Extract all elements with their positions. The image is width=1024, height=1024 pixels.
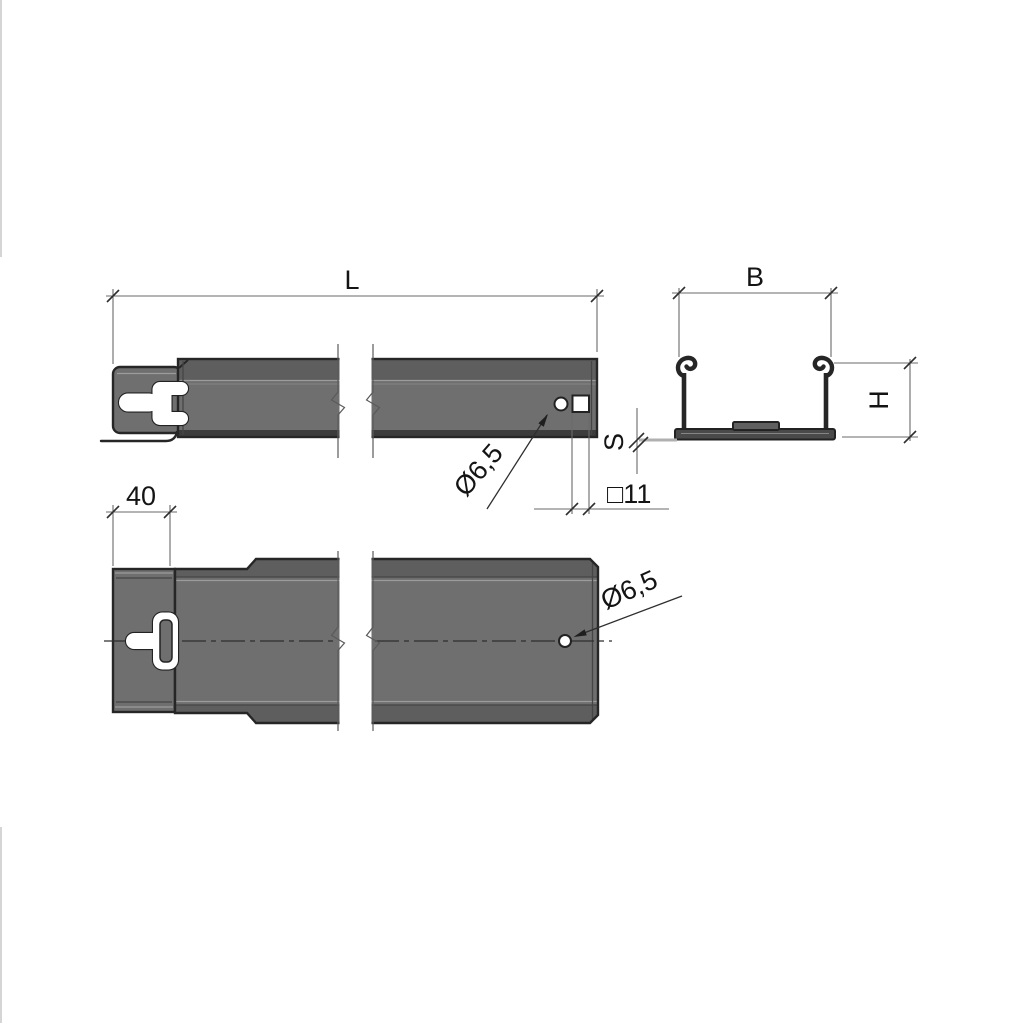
square-hole-label: □11 [607,479,651,509]
length-label: L [344,265,359,295]
thickness-label: S [599,433,629,451]
top-view: 40 [104,481,682,732]
right-lip-hook [815,358,832,376]
height-label: H [864,390,894,410]
height-dimension: H [834,357,918,443]
round-hole [555,398,568,411]
side-view: L [101,265,669,515]
drawing-canvas: L [0,0,1024,1024]
endcap-width-label: 40 [126,481,156,511]
square-hole [573,396,590,413]
thickness-dimension: S [599,408,677,474]
base-rib [733,422,779,430]
left-lip-hook [678,358,695,376]
hole-diameter-label: Ø6,5 [448,438,509,502]
width-dimension: B [672,262,838,357]
channel-body [178,359,597,437]
technical-drawing: L [0,0,1024,1024]
section-view: B S H [599,262,918,474]
round-hole-top [559,635,571,647]
width-label: B [746,262,764,292]
endcap-width-dimension: 40 [106,481,177,566]
channel-profile [675,358,835,440]
